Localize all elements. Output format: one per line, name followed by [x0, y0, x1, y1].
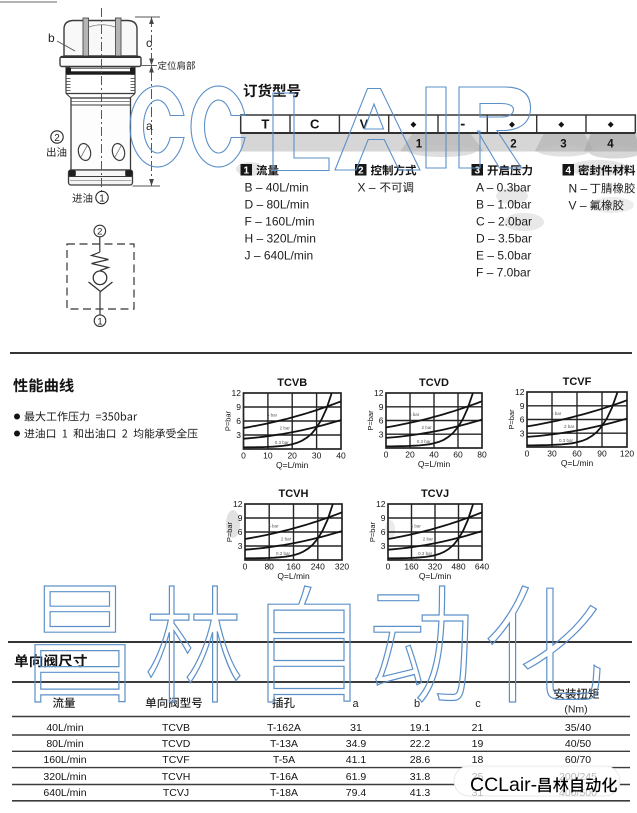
svg-text:320L/min: 320L/min	[43, 771, 86, 783]
svg-text:2: 2	[358, 166, 364, 177]
svg-text:1: 1	[99, 193, 105, 204]
svg-text:F – 7.0bar: F – 7.0bar	[476, 266, 531, 280]
svg-text:Q=L/min: Q=L/min	[276, 460, 309, 470]
svg-text:160L/min: 160L/min	[43, 754, 86, 766]
svg-text:2: 2	[54, 133, 60, 144]
svg-text:D – 80L/min: D – 80L/min	[245, 198, 310, 212]
svg-text:5 bar: 5 bar	[551, 411, 562, 416]
svg-text:Q=L/min: Q=L/min	[561, 458, 594, 468]
svg-text:12: 12	[515, 387, 525, 397]
svg-text:0.3 bar: 0.3 bar	[418, 551, 433, 556]
svg-text:80L/min: 80L/min	[46, 738, 84, 750]
svg-text:TCVD: TCVD	[419, 377, 449, 389]
svg-text:a: a	[146, 119, 153, 133]
svg-text:2 bar: 2 bar	[564, 424, 575, 429]
svg-text:4: 4	[565, 166, 571, 177]
svg-text:P=bar: P=bar	[224, 410, 233, 431]
svg-text:A – 0.3bar: A – 0.3bar	[476, 181, 531, 195]
svg-text:10: 10	[263, 451, 273, 461]
svg-text:0.3 bar: 0.3 bar	[417, 439, 432, 444]
svg-text:35/40: 35/40	[565, 722, 591, 734]
svg-text:60/70: 60/70	[565, 754, 591, 766]
svg-text:40: 40	[429, 450, 439, 460]
svg-text:TCVH: TCVH	[162, 771, 191, 783]
svg-text:640L/min: 640L/min	[43, 787, 86, 799]
svg-text:T-5A: T-5A	[273, 754, 295, 766]
svg-text:N –: N –	[569, 182, 588, 196]
svg-text:30: 30	[312, 451, 322, 461]
svg-text:40/50: 40/50	[565, 738, 591, 750]
svg-text:30: 30	[547, 449, 557, 459]
svg-text:P=bar: P=bar	[507, 409, 516, 430]
svg-text:12: 12	[374, 388, 384, 398]
svg-text:T-162A: T-162A	[267, 722, 301, 734]
svg-text:P=bar: P=bar	[368, 521, 377, 542]
svg-text:3: 3	[379, 429, 384, 439]
svg-text:3: 3	[520, 428, 525, 438]
svg-text:F – 160L/min: F – 160L/min	[245, 215, 315, 229]
svg-text:TCVJ: TCVJ	[163, 787, 189, 799]
svg-text:79.4: 79.4	[346, 787, 367, 799]
svg-text:Q=L/min: Q=L/min	[418, 459, 451, 469]
svg-text:60: 60	[572, 449, 582, 459]
svg-text:CCLair-: CCLair-	[470, 774, 537, 796]
svg-text:6: 6	[381, 527, 386, 537]
svg-text:X –: X –	[358, 181, 376, 195]
svg-text:T-18A: T-18A	[270, 787, 298, 799]
svg-text:41.3: 41.3	[410, 787, 431, 799]
svg-text:2: 2	[510, 139, 516, 151]
svg-text:5 bar: 5 bar	[409, 412, 420, 417]
svg-text:6: 6	[236, 416, 241, 426]
svg-text:Q=L/min: Q=L/min	[419, 571, 452, 581]
svg-text:9: 9	[381, 513, 386, 523]
svg-text:90: 90	[597, 449, 607, 459]
svg-text:12: 12	[233, 499, 243, 509]
svg-text:80: 80	[477, 450, 487, 460]
svg-text:9: 9	[379, 402, 384, 412]
svg-text:C – 2.0bar: C – 2.0bar	[476, 215, 532, 229]
svg-text:H – 320L/min: H – 320L/min	[245, 232, 316, 246]
svg-text:12: 12	[232, 388, 242, 398]
svg-text:V –: V –	[569, 199, 587, 213]
svg-text:40: 40	[336, 451, 346, 461]
svg-text:0.3 bar: 0.3 bar	[276, 551, 291, 556]
svg-text:a: a	[352, 698, 359, 710]
svg-text:b: b	[48, 31, 55, 45]
svg-text:TCVF: TCVF	[162, 754, 189, 766]
svg-text:3: 3	[236, 430, 241, 440]
svg-text:19.1: 19.1	[410, 722, 431, 734]
svg-text:240: 240	[311, 562, 325, 572]
svg-text:1: 1	[416, 139, 423, 151]
svg-text:5 bar: 5 bar	[411, 523, 422, 528]
svg-text:TCVF: TCVF	[563, 376, 592, 388]
svg-text:T-13A: T-13A	[270, 738, 298, 750]
svg-text:T-16A: T-16A	[270, 771, 298, 783]
svg-text:0: 0	[386, 562, 391, 572]
svg-text:5 bar: 5 bar	[267, 412, 278, 417]
svg-text:31: 31	[350, 722, 362, 734]
svg-text:P=bar: P=bar	[366, 410, 375, 431]
svg-text:TCVB: TCVB	[277, 377, 307, 389]
svg-text:40L/min: 40L/min	[46, 722, 84, 734]
svg-text:9: 9	[236, 402, 241, 412]
svg-text:C: C	[310, 117, 320, 132]
svg-text:TCVJ: TCVJ	[421, 488, 449, 500]
svg-text:0: 0	[243, 562, 248, 572]
svg-text:P=bar: P=bar	[225, 521, 234, 542]
svg-text:480: 480	[451, 562, 465, 572]
svg-text:5 bar: 5 bar	[268, 523, 279, 528]
svg-text:60: 60	[453, 450, 463, 460]
svg-text:0: 0	[241, 451, 246, 461]
svg-text:c: c	[475, 698, 481, 710]
svg-text:21: 21	[472, 722, 484, 734]
svg-text:0.3 bar: 0.3 bar	[559, 438, 574, 443]
svg-text:2 bar: 2 bar	[280, 425, 291, 430]
svg-text:2 bar: 2 bar	[422, 425, 433, 430]
svg-text:3: 3	[381, 541, 386, 551]
svg-text:D – 3.5bar: D – 3.5bar	[476, 232, 532, 246]
svg-text:TCVD: TCVD	[162, 738, 191, 750]
svg-text:1: 1	[97, 316, 102, 327]
svg-text:34.9: 34.9	[346, 738, 367, 750]
svg-text:0.3 bar: 0.3 bar	[275, 440, 290, 445]
svg-text:2 bar: 2 bar	[281, 536, 292, 541]
svg-text:B – 40L/min: B – 40L/min	[245, 181, 309, 195]
svg-text:(Nm): (Nm)	[564, 704, 587, 716]
svg-text:9: 9	[238, 513, 243, 523]
svg-text:20: 20	[405, 450, 415, 460]
svg-text:9: 9	[520, 401, 525, 411]
svg-text:-: -	[460, 116, 465, 133]
svg-text:2: 2	[97, 227, 102, 238]
svg-text:20: 20	[287, 451, 297, 461]
svg-text:2 bar: 2 bar	[423, 536, 434, 541]
svg-text:640: 640	[475, 562, 489, 572]
svg-text:J – 640L/min: J – 640L/min	[245, 249, 314, 263]
svg-text:120: 120	[620, 449, 634, 459]
svg-text:c: c	[146, 36, 152, 50]
svg-text:12: 12	[376, 499, 386, 509]
svg-text:E – 5.0bar: E – 5.0bar	[476, 249, 531, 263]
svg-text:160: 160	[404, 562, 418, 572]
svg-text:19: 19	[472, 738, 484, 750]
svg-text:80: 80	[264, 562, 274, 572]
svg-text:320: 320	[428, 562, 442, 572]
svg-text:Q=L/min: Q=L/min	[277, 571, 310, 581]
svg-text:3: 3	[238, 541, 243, 551]
svg-text:TCVH: TCVH	[279, 488, 309, 500]
svg-text:18: 18	[472, 754, 484, 766]
svg-text:4: 4	[607, 139, 614, 151]
svg-text:TCVB: TCVB	[162, 722, 190, 734]
svg-text:6: 6	[379, 416, 384, 426]
svg-text:160: 160	[286, 562, 300, 572]
svg-text:31.8: 31.8	[410, 771, 431, 783]
svg-text:1: 1	[243, 166, 249, 177]
svg-text:28.6: 28.6	[410, 754, 431, 766]
svg-text:0: 0	[525, 449, 530, 459]
svg-text:41.1: 41.1	[346, 754, 367, 766]
svg-text:b: b	[414, 698, 420, 710]
svg-text:61.9: 61.9	[346, 771, 367, 783]
svg-text:6: 6	[238, 527, 243, 537]
svg-text:6: 6	[520, 415, 525, 425]
svg-text:B – 1.0bar: B – 1.0bar	[476, 198, 531, 212]
svg-text:T: T	[261, 117, 269, 132]
svg-text:320: 320	[335, 562, 349, 572]
svg-text:3: 3	[560, 139, 566, 151]
svg-text:0: 0	[384, 450, 389, 460]
svg-text:22.2: 22.2	[410, 738, 431, 750]
